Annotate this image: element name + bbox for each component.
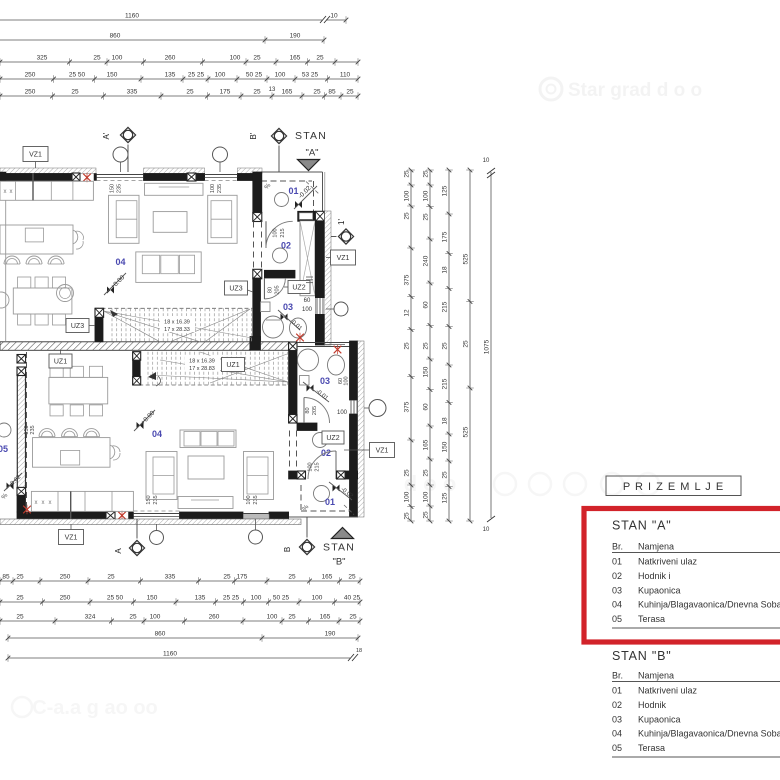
svg-text:860: 860	[110, 33, 121, 40]
svg-text:80: 80	[305, 407, 311, 413]
svg-text:100: 100	[230, 55, 241, 62]
svg-text:25: 25	[423, 213, 430, 221]
svg-text:240: 240	[423, 255, 430, 266]
svg-text:165: 165	[320, 614, 331, 621]
svg-text:x: x	[49, 500, 52, 506]
svg-text:100: 100	[273, 228, 279, 237]
svg-text:02: 02	[612, 700, 622, 710]
svg-text:1': 1'	[337, 219, 346, 225]
svg-text:25: 25	[288, 614, 296, 621]
svg-text:x: x	[35, 500, 38, 506]
svg-text:150: 150	[110, 184, 116, 193]
svg-text:Kuhinja/Blagavaonica/Dnevna So: Kuhinja/Blagavaonica/Dnevna Soba	[638, 729, 780, 739]
svg-text:STAN "A": STAN "A"	[612, 519, 672, 533]
svg-text:VZ1: VZ1	[337, 255, 350, 262]
svg-text:04: 04	[152, 429, 162, 439]
svg-text:18: 18	[442, 417, 449, 425]
svg-text:VZ1: VZ1	[29, 152, 42, 159]
svg-text:25: 25	[71, 89, 79, 96]
svg-text:53 25: 53 25	[302, 72, 319, 79]
svg-text:260: 260	[165, 55, 176, 62]
svg-text:10: 10	[483, 158, 490, 164]
svg-text:25: 25	[129, 614, 137, 621]
svg-text:STAN "B": STAN "B"	[612, 649, 672, 663]
svg-text:25: 25	[349, 614, 357, 621]
svg-text:100: 100	[404, 190, 411, 201]
svg-text:335: 335	[127, 89, 138, 96]
svg-text:175: 175	[220, 89, 231, 96]
svg-text:25: 25	[253, 89, 261, 96]
svg-text:25 50: 25 50	[107, 595, 124, 602]
svg-text:"B": "B"	[332, 557, 345, 568]
svg-text:50 25: 50 25	[273, 595, 290, 602]
svg-text:80: 80	[268, 287, 274, 293]
svg-text:60: 60	[423, 403, 430, 411]
svg-text:STAN: STAN	[323, 542, 355, 554]
svg-text:100: 100	[308, 462, 314, 471]
svg-text:25 50: 25 50	[69, 72, 86, 79]
svg-text:25: 25	[313, 89, 321, 96]
svg-text:04: 04	[612, 600, 622, 610]
svg-text:25 25: 25 25	[223, 595, 240, 602]
svg-text:C-a.a g ao oo: C-a.a g ao oo	[32, 697, 158, 719]
svg-text:Natkriveni ulaz: Natkriveni ulaz	[638, 557, 698, 567]
svg-text:150: 150	[442, 441, 449, 452]
svg-text:04: 04	[612, 729, 622, 739]
svg-text:B: B	[283, 547, 292, 552]
svg-text:100: 100	[302, 307, 313, 313]
svg-text:01: 01	[612, 686, 622, 696]
svg-text:100: 100	[210, 184, 216, 193]
svg-text:100: 100	[150, 614, 161, 621]
svg-text:B': B'	[249, 132, 258, 139]
svg-text:25: 25	[16, 574, 24, 581]
svg-text:25: 25	[442, 342, 449, 350]
svg-text:25: 25	[423, 342, 430, 350]
svg-text:04: 04	[115, 257, 125, 267]
svg-text:85: 85	[328, 89, 336, 96]
svg-text:x: x	[10, 189, 13, 195]
svg-text:Natkriveni ulaz: Natkriveni ulaz	[638, 686, 698, 696]
svg-text:UZ1: UZ1	[54, 359, 67, 366]
svg-text:110: 110	[340, 72, 351, 79]
svg-text:25: 25	[288, 574, 296, 581]
svg-text:175: 175	[442, 231, 449, 242]
svg-text:40 25: 40 25	[344, 595, 361, 602]
svg-text:Star grad d o o: Star grad d o o	[568, 80, 702, 101]
svg-text:"A": "A"	[305, 148, 318, 159]
svg-text:03: 03	[612, 585, 622, 595]
svg-text:100: 100	[112, 55, 123, 62]
svg-text:165: 165	[290, 55, 301, 62]
svg-text:100: 100	[312, 595, 323, 602]
svg-text:Kupaonica: Kupaonica	[638, 585, 681, 595]
svg-text:UZ3: UZ3	[71, 323, 84, 330]
svg-text:25: 25	[253, 55, 261, 62]
svg-text:d o o: d o o	[404, 471, 457, 496]
svg-text:150: 150	[147, 595, 158, 602]
svg-text:205: 205	[312, 406, 318, 415]
svg-text:03: 03	[283, 302, 293, 312]
svg-text:250: 250	[60, 595, 71, 602]
svg-text:25: 25	[404, 212, 411, 220]
svg-text:1160: 1160	[125, 13, 139, 20]
svg-text:UZ2: UZ2	[326, 435, 339, 442]
svg-text:Namjena: Namjena	[638, 671, 674, 681]
svg-text:215: 215	[315, 462, 321, 471]
svg-text:150: 150	[146, 495, 152, 504]
svg-text:25: 25	[404, 512, 411, 520]
svg-text:215: 215	[442, 301, 449, 312]
svg-text:VZ1: VZ1	[65, 535, 78, 542]
svg-text:05: 05	[612, 743, 622, 753]
svg-text:25: 25	[316, 55, 324, 62]
svg-text:UZ3: UZ3	[229, 286, 242, 293]
svg-text:25: 25	[404, 170, 411, 178]
svg-text:375: 375	[404, 274, 411, 285]
svg-text:12: 12	[404, 309, 411, 317]
svg-text:25: 25	[223, 574, 231, 581]
svg-text:165: 165	[282, 89, 293, 96]
svg-text:A: A	[114, 548, 123, 554]
svg-text:10: 10	[330, 13, 338, 20]
svg-text:25: 25	[404, 342, 411, 350]
svg-text:Hodnik: Hodnik	[638, 700, 667, 710]
svg-text:250: 250	[25, 72, 36, 79]
svg-text:25: 25	[93, 55, 101, 62]
svg-text:01: 01	[612, 557, 622, 567]
svg-text:150: 150	[107, 72, 118, 79]
svg-text:Br.: Br.	[612, 542, 623, 552]
svg-text:85: 85	[2, 574, 10, 581]
svg-text:325: 325	[37, 55, 48, 62]
svg-text:17 x 28.33: 17 x 28.33	[164, 327, 190, 333]
svg-text:x: x	[4, 189, 7, 195]
svg-text:25: 25	[423, 511, 430, 519]
svg-text:VZ1: VZ1	[376, 448, 389, 455]
svg-text:x: x	[42, 500, 45, 506]
svg-text:100: 100	[267, 614, 278, 621]
svg-text:UZ1: UZ1	[226, 362, 239, 369]
svg-text:324: 324	[85, 614, 96, 621]
svg-text:525: 525	[463, 426, 470, 437]
svg-text:03: 03	[320, 376, 330, 386]
svg-text:125: 125	[442, 185, 449, 196]
svg-text:335: 335	[165, 574, 176, 581]
svg-text:Kupaonica: Kupaonica	[638, 714, 681, 724]
svg-text:100: 100	[344, 376, 350, 385]
svg-text:60: 60	[304, 298, 311, 304]
svg-text:215: 215	[280, 228, 286, 237]
svg-text:Terasa: Terasa	[638, 614, 665, 624]
svg-text:25: 25	[346, 89, 354, 96]
svg-text:05: 05	[0, 444, 8, 454]
svg-text:03: 03	[612, 714, 622, 724]
svg-text:Br.: Br.	[612, 671, 623, 681]
svg-text:50 25: 50 25	[246, 72, 263, 79]
svg-text:18 x 16.39: 18 x 16.39	[164, 320, 190, 326]
svg-text:135: 135	[195, 595, 206, 602]
svg-text:UZ2: UZ2	[292, 285, 305, 292]
svg-text:05: 05	[612, 614, 622, 624]
svg-text:10: 10	[483, 527, 490, 533]
svg-text:175: 175	[237, 574, 248, 581]
svg-text:235: 235	[30, 425, 36, 434]
svg-text:205: 205	[275, 285, 281, 294]
svg-text:Hodnik i: Hodnik i	[638, 571, 671, 581]
svg-text:1160: 1160	[163, 651, 177, 658]
svg-text:25: 25	[16, 614, 24, 621]
svg-text:215: 215	[442, 378, 449, 389]
svg-text:Namjena: Namjena	[638, 542, 674, 552]
svg-text:165: 165	[423, 439, 430, 450]
svg-text:190: 190	[325, 631, 336, 638]
svg-text:17 x 28.83: 17 x 28.83	[189, 366, 215, 372]
svg-text:Terasa: Terasa	[638, 743, 665, 753]
svg-text:13: 13	[269, 87, 276, 93]
svg-text:18: 18	[442, 266, 449, 274]
svg-text:18 x 16.39: 18 x 16.39	[189, 359, 215, 365]
svg-text:1075: 1075	[484, 339, 491, 354]
svg-text:235: 235	[217, 184, 223, 193]
svg-text:25: 25	[463, 340, 470, 348]
svg-text:150: 150	[423, 366, 430, 377]
svg-text:Kuhinja/Blagavaonica/Dnevna So: Kuhinja/Blagavaonica/Dnevna Soba	[638, 600, 780, 610]
svg-text:235: 235	[117, 184, 123, 193]
svg-text:100: 100	[246, 495, 252, 504]
svg-text:A': A'	[102, 132, 111, 139]
svg-text:165: 165	[322, 574, 333, 581]
svg-text:375: 375	[404, 401, 411, 412]
svg-text:25: 25	[186, 89, 194, 96]
svg-text:18: 18	[356, 648, 362, 654]
svg-text:235: 235	[153, 495, 159, 504]
svg-text:135: 135	[165, 72, 176, 79]
svg-text:250: 250	[25, 89, 36, 96]
svg-text:25: 25	[348, 574, 356, 581]
svg-text:100: 100	[251, 595, 262, 602]
svg-text:25: 25	[16, 595, 24, 602]
svg-text:02: 02	[612, 571, 622, 581]
svg-text:01: 01	[325, 497, 335, 507]
svg-text:25: 25	[107, 574, 115, 581]
svg-text:STAN: STAN	[295, 130, 327, 142]
svg-text:02: 02	[281, 241, 291, 251]
svg-text:100: 100	[337, 410, 348, 416]
svg-text:860: 860	[155, 631, 166, 638]
svg-text:60: 60	[423, 301, 430, 309]
svg-text:25: 25	[423, 170, 430, 178]
svg-text:525: 525	[463, 253, 470, 264]
svg-text:235: 235	[253, 495, 259, 504]
svg-text:100: 100	[275, 72, 286, 79]
svg-text:100: 100	[215, 72, 226, 79]
svg-text:190: 190	[290, 33, 301, 40]
svg-text:25 25: 25 25	[188, 72, 205, 79]
svg-text:260: 260	[209, 614, 220, 621]
svg-text:250: 250	[60, 574, 71, 581]
svg-text:100: 100	[423, 190, 430, 201]
